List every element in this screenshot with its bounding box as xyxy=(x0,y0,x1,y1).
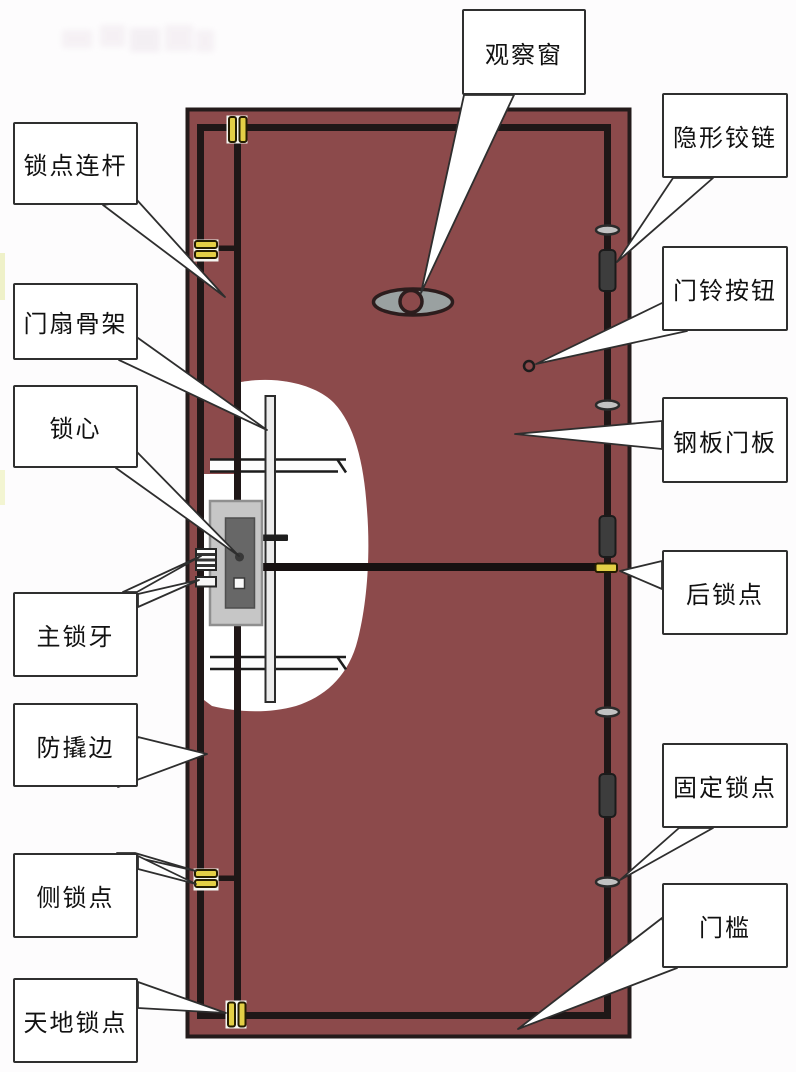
side-lock-point xyxy=(194,869,219,891)
label-lock-point-linkage-rod: 锁点连杆 xyxy=(13,122,138,205)
label-text: 天地锁点 xyxy=(24,1003,128,1038)
label-door-leaf-frame: 门扇骨架 xyxy=(13,283,138,360)
label-text: 钢板门板 xyxy=(673,423,777,458)
bottom-lock-point xyxy=(226,1001,247,1029)
label-text: 固定锁点 xyxy=(673,768,777,803)
left-edge-artifact xyxy=(0,253,5,505)
label-text: 门铃按钮 xyxy=(673,271,777,306)
security-door-diagram: 锁点连杆 门扇骨架 锁心 主锁牙 防撬边 侧锁点 天地锁点 观察窗 隐形铰链 门… xyxy=(0,0,796,1072)
label-lock-core: 锁心 xyxy=(13,385,138,468)
label-doorbell-button: 门铃按钮 xyxy=(662,246,788,331)
label-text: 后锁点 xyxy=(686,575,764,610)
label-text: 防撬边 xyxy=(37,728,115,763)
label-text: 侧锁点 xyxy=(37,878,115,913)
label-anti-pry-edge: 防撬边 xyxy=(13,703,138,787)
label-side-lock-point: 侧锁点 xyxy=(13,853,138,938)
label-text: 锁心 xyxy=(50,409,102,444)
upper-side-lock-point xyxy=(194,240,219,262)
label-top-bottom-lock-point: 天地锁点 xyxy=(13,978,138,1063)
label-peephole: 观察窗 xyxy=(462,9,586,95)
doorbell-button xyxy=(524,361,534,371)
watermark xyxy=(62,25,214,52)
label-text: 主锁牙 xyxy=(37,617,115,652)
label-door-sill: 门槛 xyxy=(662,883,788,968)
label-fixed-lock-point: 固定锁点 xyxy=(662,743,788,828)
label-rear-lock-point: 后锁点 xyxy=(662,550,788,635)
label-text: 门扇骨架 xyxy=(24,304,128,339)
skeleton-vertical-member xyxy=(266,396,276,702)
label-text: 锁点连杆 xyxy=(24,146,128,181)
pointer-fixed-lock xyxy=(620,828,713,880)
rear-lock-point xyxy=(596,564,618,573)
label-main-lock-bolt: 主锁牙 xyxy=(13,592,138,677)
label-text: 隐形铰链 xyxy=(673,118,777,153)
label-steel-door-panel: 钢板门板 xyxy=(662,397,788,483)
label-hidden-hinge: 隐形铰链 xyxy=(662,93,788,178)
top-lock-point xyxy=(227,116,248,144)
label-text: 观察窗 xyxy=(485,35,563,70)
peephole xyxy=(374,289,453,315)
label-text: 门槛 xyxy=(699,908,751,943)
